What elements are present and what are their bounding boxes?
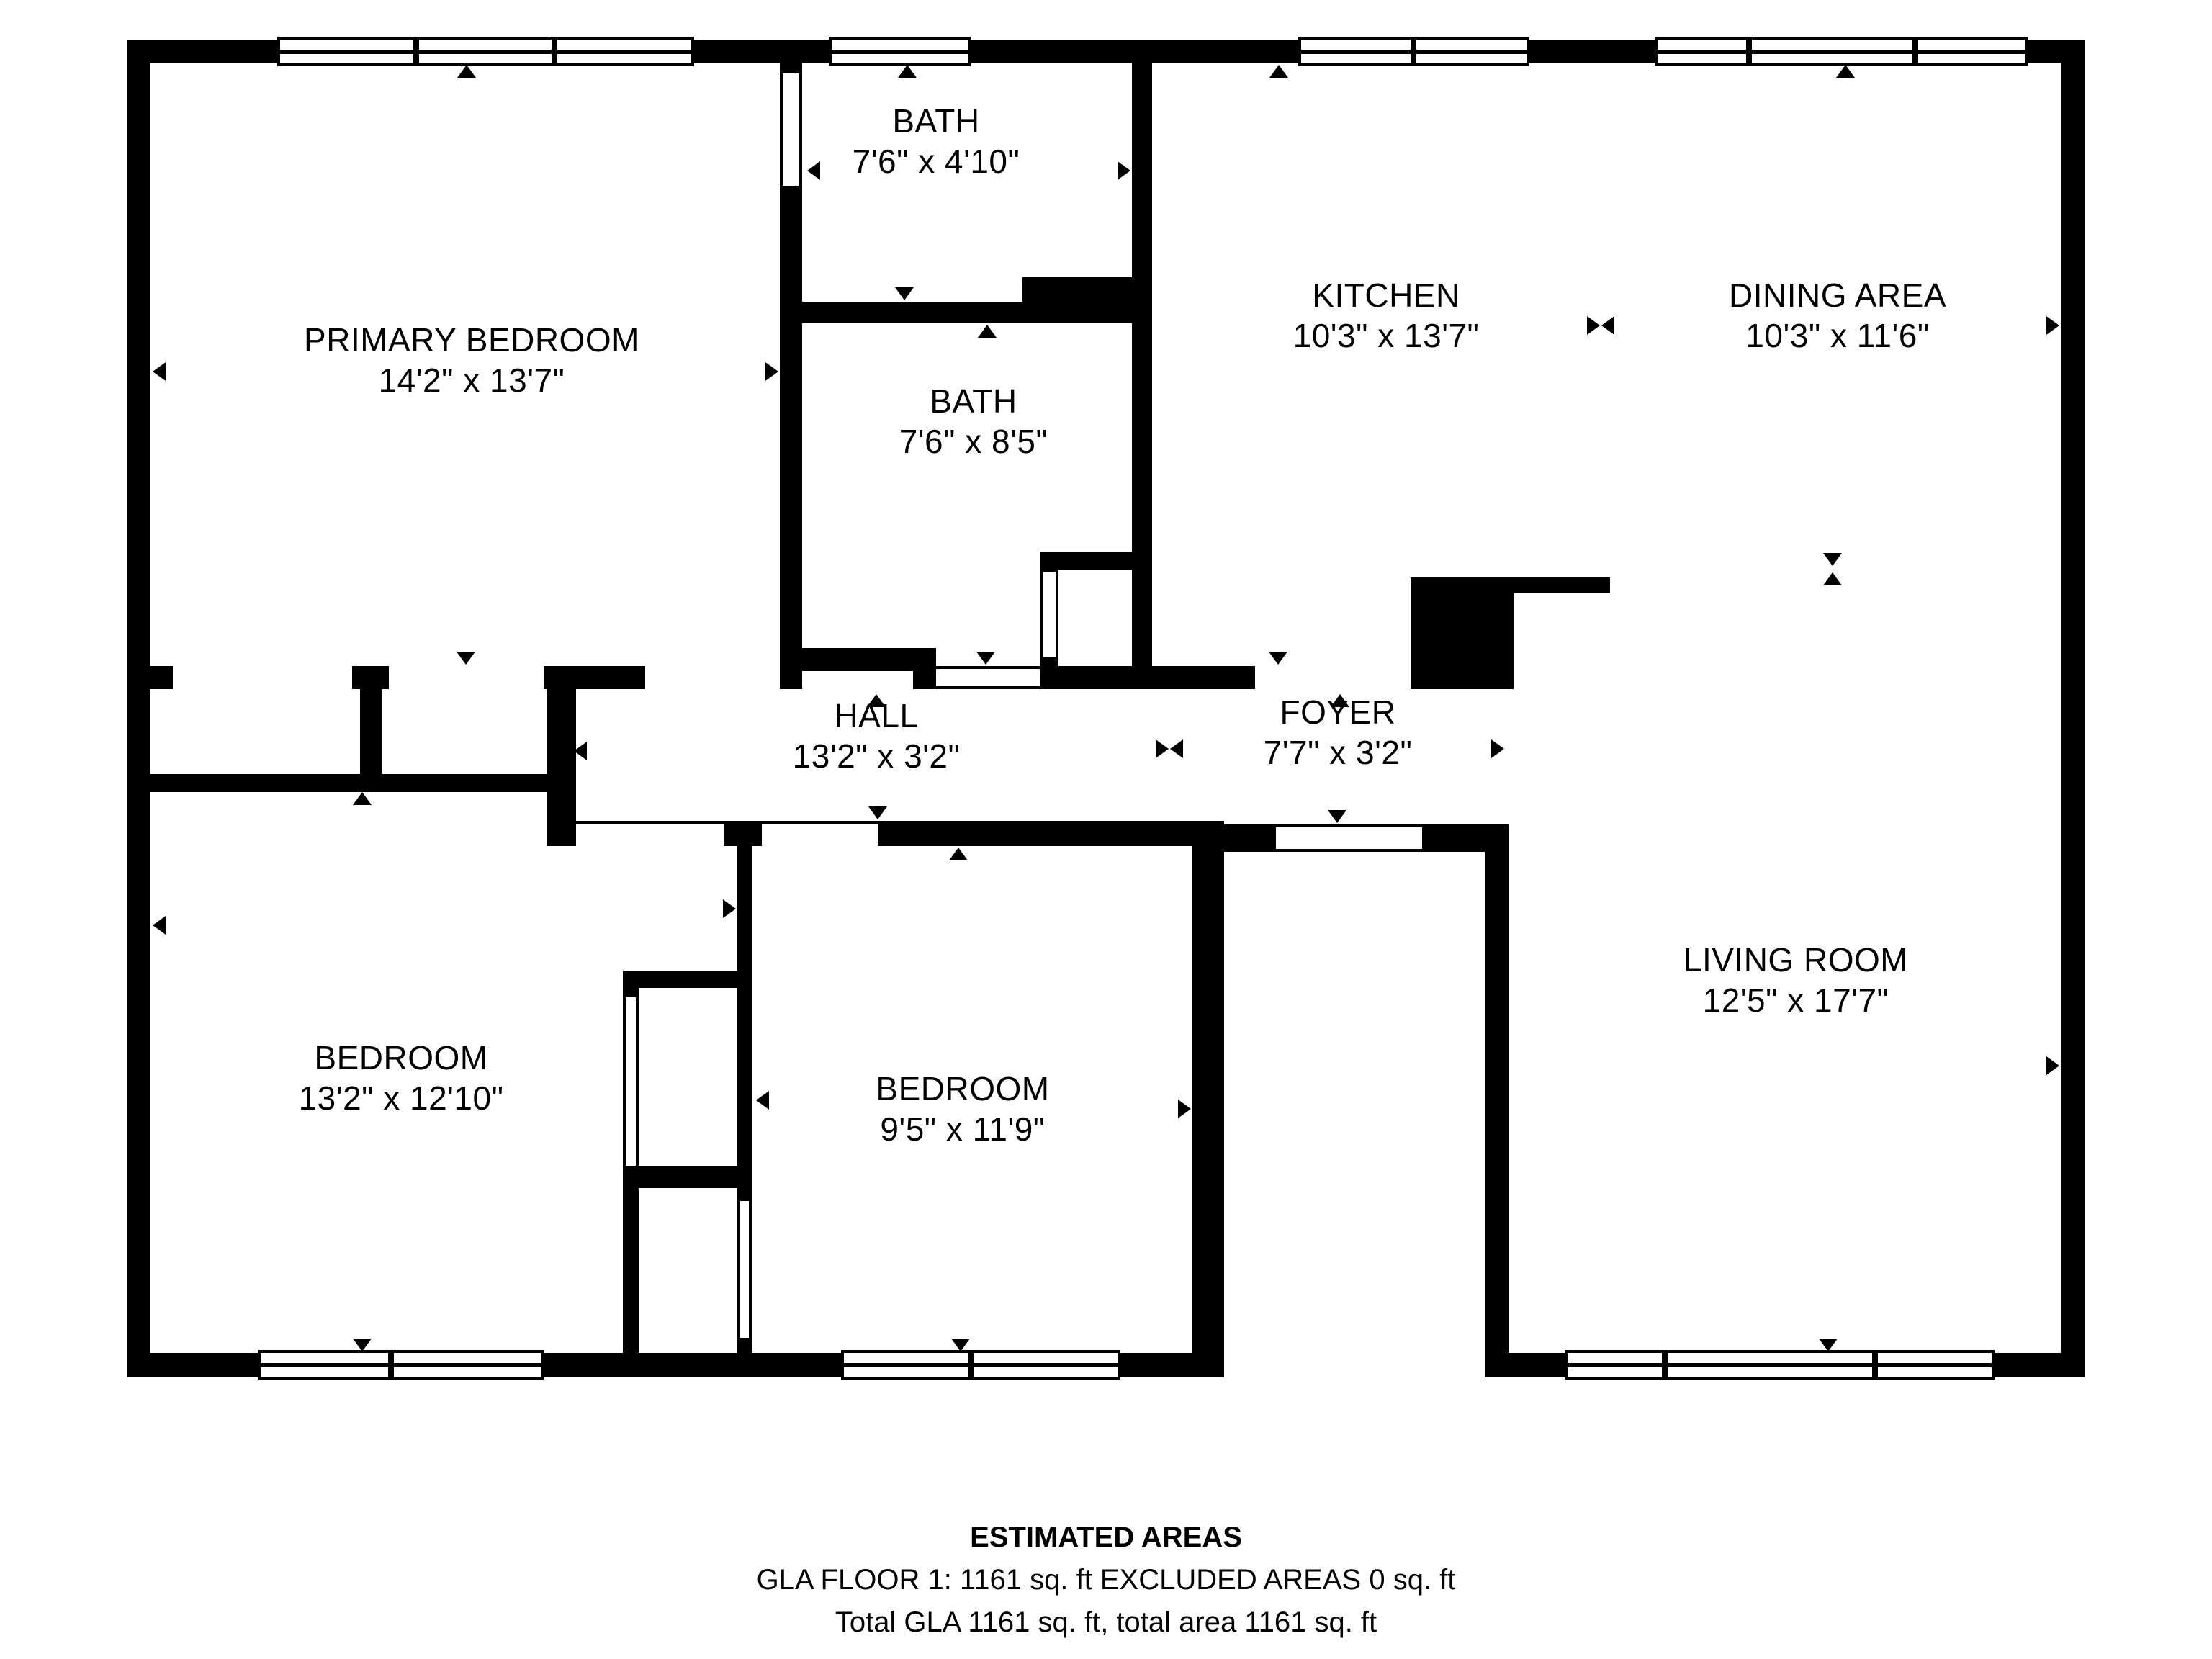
window-pane (841, 1350, 971, 1380)
dimension-arrow-icon (756, 1091, 769, 1110)
window-pane (1749, 37, 1915, 66)
dimension-arrow-icon (868, 806, 887, 819)
window-pane (416, 37, 554, 66)
window-pane (1413, 37, 1529, 66)
wall (737, 827, 752, 1201)
wall (1514, 577, 1610, 593)
room-dims: 13'2" x 3'2" (793, 736, 961, 776)
dimension-arrow-icon (1178, 1100, 1191, 1118)
wall (1132, 63, 1152, 689)
room-label-bedroom-center: BEDROOM 9'5" x 11'9" (876, 1069, 1049, 1149)
dimension-arrow-icon (1819, 1339, 1838, 1352)
dimension-arrow-icon (457, 652, 475, 665)
dimension-arrow-icon (1156, 739, 1169, 758)
dimension-arrow-icon (976, 652, 995, 665)
dimension-arrow-icon (1823, 553, 1842, 566)
dimension-arrow-icon (1269, 65, 1288, 78)
door-opening (737, 1201, 752, 1338)
window-pane (1565, 1350, 1665, 1380)
window (1298, 37, 1529, 66)
wall (1422, 824, 1485, 852)
wall (127, 774, 576, 792)
room-dims: 12'5" x 17'7" (1683, 980, 1908, 1020)
window (277, 37, 694, 66)
wall (1040, 552, 1152, 570)
room-dims: 10'3" x 13'7" (1293, 315, 1480, 356)
dimension-arrow-icon (1269, 652, 1287, 665)
room-dims: 9'5" x 11'9" (876, 1109, 1049, 1149)
window-pane (829, 37, 971, 66)
door-opening (1276, 824, 1422, 852)
dimension-arrow-icon (949, 848, 968, 860)
wall (360, 689, 382, 774)
window (829, 37, 971, 66)
window-pane (554, 37, 694, 66)
window-pane (277, 37, 416, 66)
window-pane (1875, 1350, 1995, 1380)
estimated-areas-title: ESTIMATED AREAS (0, 1516, 2212, 1559)
room-name: KITCHEN (1293, 275, 1480, 315)
dimension-arrow-icon (1328, 810, 1346, 823)
room-label-bath-main: BATH 7'6" x 8'5" (899, 381, 1048, 462)
dimension-arrow-icon (807, 161, 820, 180)
dimension-arrow-icon (1836, 65, 1855, 78)
window-pane (1655, 37, 1749, 66)
dimension-arrow-icon (353, 1339, 372, 1352)
dimension-arrow-icon (867, 694, 886, 707)
window-pane (258, 1350, 391, 1380)
room-dims: 13'2" x 12'10" (299, 1078, 504, 1118)
room-dims: 7'6" x 4'10" (853, 141, 1020, 181)
dimension-arrow-icon (2046, 316, 2059, 335)
wall (1411, 577, 1514, 689)
wall (623, 971, 737, 988)
dimension-arrow-icon (898, 65, 917, 78)
window-pane (1298, 37, 1413, 66)
room-label-bath-top: BATH 7'6" x 4'10" (853, 101, 1020, 181)
door-opening (936, 666, 1040, 689)
dimension-arrow-icon (1170, 739, 1183, 758)
wall (547, 666, 576, 846)
floor-plan-page: PRIMARY BEDROOM 14'2" x 13'7" BATH 7'6" … (0, 0, 2212, 1659)
wall (737, 1338, 752, 1377)
dimension-arrow-icon (1331, 694, 1349, 707)
room-name: DINING AREA (1729, 275, 1946, 315)
room-name: BEDROOM (299, 1038, 504, 1078)
wall (913, 648, 936, 689)
room-dims: 7'7" x 3'2" (1264, 732, 1413, 773)
window (1655, 37, 2028, 66)
dimension-arrow-icon (1491, 739, 1504, 758)
dimension-arrow-icon (1587, 316, 1600, 335)
wall (802, 302, 1022, 323)
window-pane (1665, 1350, 1875, 1380)
wall (352, 666, 389, 689)
door-opening (780, 73, 802, 186)
estimated-areas-line1: GLA FLOOR 1: 1161 sq. ft EXCLUDED AREAS … (0, 1559, 2212, 1601)
room-name: LIVING ROOM (1683, 940, 1908, 980)
dimension-arrow-icon (153, 916, 166, 935)
door-opening (1040, 572, 1058, 657)
wall (1192, 821, 1224, 1377)
room-label-hall: HALL 13'2" x 3'2" (793, 696, 961, 776)
estimated-areas: ESTIMATED AREAS GLA FLOOR 1: 1161 sq. ft… (0, 1516, 2212, 1644)
wall (1058, 666, 1255, 689)
room-dims: 14'2" x 13'7" (304, 360, 639, 400)
room-dims: 10'3" x 11'6" (1729, 315, 1946, 356)
wall (1224, 824, 1276, 852)
dimension-arrow-icon (895, 287, 914, 300)
room-name: PRIMARY BEDROOM (304, 320, 639, 360)
wall (1485, 824, 1509, 1377)
door-opening (623, 997, 639, 1166)
window-pane (1915, 37, 2028, 66)
room-name: BATH (853, 101, 1020, 141)
window (258, 1350, 544, 1380)
room-label-kitchen: KITCHEN 10'3" x 13'7" (1293, 275, 1480, 356)
wall (2061, 40, 2085, 1377)
dimension-arrow-icon (153, 362, 166, 381)
dimension-arrow-icon (1823, 572, 1842, 585)
dimension-arrow-icon (951, 1339, 970, 1352)
dimension-arrow-icon (457, 65, 476, 78)
dimension-arrow-icon (723, 899, 736, 918)
estimated-areas-line2: Total GLA 1161 sq. ft, total area 1161 s… (0, 1601, 2212, 1644)
window (1565, 1350, 1995, 1380)
door-opening (576, 821, 724, 846)
room-dims: 7'6" x 8'5" (899, 421, 1048, 462)
dimension-arrow-icon (1118, 161, 1130, 180)
window (841, 1350, 1120, 1380)
wall (878, 821, 1224, 846)
room-label-bedroom-left: BEDROOM 13'2" x 12'10" (299, 1038, 504, 1118)
wall (150, 666, 173, 689)
dimension-arrow-icon (1601, 316, 1614, 335)
room-label-primary-bedroom: PRIMARY BEDROOM 14'2" x 13'7" (304, 320, 639, 400)
wall (623, 1166, 639, 1353)
dimension-arrow-icon (765, 362, 778, 381)
window-pane (971, 1350, 1120, 1380)
wall (623, 1166, 752, 1188)
door-opening (762, 821, 878, 846)
room-label-dining-area: DINING AREA 10'3" x 11'6" (1729, 275, 1946, 356)
floor-plan: PRIMARY BEDROOM 14'2" x 13'7" BATH 7'6" … (0, 0, 2212, 1411)
dimension-arrow-icon (574, 742, 587, 760)
dimension-arrow-icon (2046, 1056, 2059, 1075)
wall (127, 40, 150, 1377)
room-name: BATH (899, 381, 1048, 421)
dimension-arrow-icon (353, 792, 372, 805)
window-pane (391, 1350, 544, 1380)
room-label-living-room: LIVING ROOM 12'5" x 17'7" (1683, 940, 1908, 1020)
dimension-arrow-icon (978, 325, 997, 338)
room-name: BEDROOM (876, 1069, 1049, 1109)
